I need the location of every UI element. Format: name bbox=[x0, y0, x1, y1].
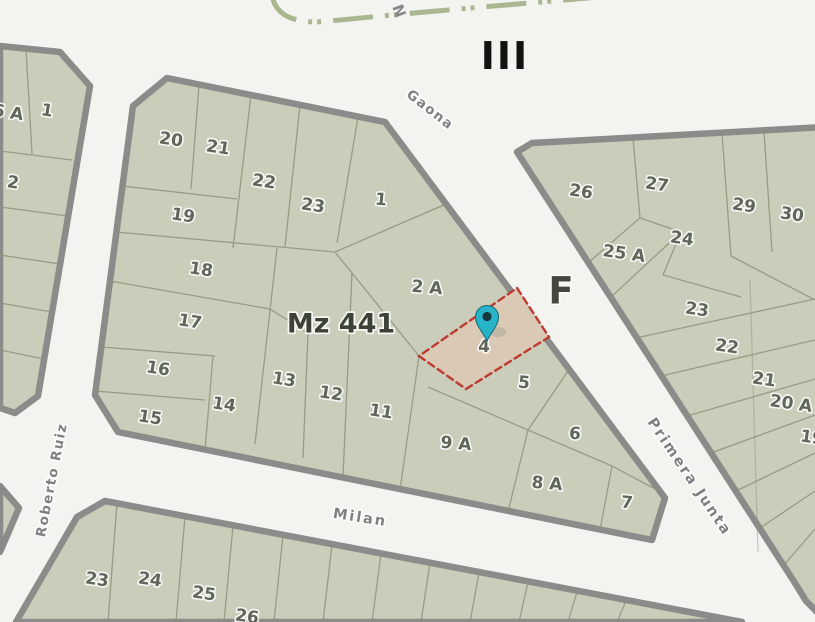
map-canvas[interactable]: 6 A 1 2 20 21 22 23 1 19 18 2 A 17 16 15… bbox=[0, 0, 815, 622]
parcel-label-29: 29 bbox=[731, 194, 757, 217]
parcel-label-5: 5 bbox=[517, 373, 531, 394]
parcel-label-14: 14 bbox=[211, 393, 238, 416]
parcel-label-18: 18 bbox=[188, 258, 215, 281]
parcel-label-8a: 8 A bbox=[531, 473, 564, 496]
parcel-label-26-right: 26 bbox=[568, 180, 594, 203]
parcel-label-2a: 2 A bbox=[411, 277, 444, 300]
parcel-label-16: 16 bbox=[145, 357, 172, 380]
selected-parcel-label: 4 bbox=[478, 337, 490, 357]
pin-hole bbox=[482, 312, 491, 321]
parcel-label-21-right: 21 bbox=[751, 368, 777, 391]
parcel-label-15: 15 bbox=[137, 406, 164, 429]
parcel-label-19: 19 bbox=[170, 204, 197, 227]
parcel-label-25-bottom: 25 bbox=[191, 582, 217, 605]
parcel-label-24-right: 24 bbox=[669, 227, 695, 250]
parcel-label-26-bottom: 26 bbox=[234, 605, 260, 622]
parcel-label-30: 30 bbox=[779, 203, 805, 226]
zone-label: III bbox=[481, 34, 529, 78]
parcel-label-23-bottom: 23 bbox=[84, 568, 110, 591]
parcel-label-24-bottom: 24 bbox=[137, 568, 163, 591]
parcel-label-17: 17 bbox=[177, 310, 204, 333]
parcel-label-22: 22 bbox=[251, 170, 278, 193]
parcel-label-20: 20 bbox=[158, 128, 185, 151]
parcel-label-21: 21 bbox=[205, 136, 232, 159]
block-title-mz441: Mz 441 bbox=[287, 309, 395, 340]
parcel-label-11: 11 bbox=[368, 400, 395, 423]
parcel-label-7: 7 bbox=[620, 493, 634, 514]
parcel-label-6a: 6 A bbox=[0, 101, 26, 126]
parcel-label-23: 23 bbox=[300, 194, 327, 217]
map-viewer[interactable]: 6 A 1 2 20 21 22 23 1 19 18 2 A 17 16 15… bbox=[0, 0, 815, 622]
parcel-label-19-right: 19 bbox=[799, 426, 815, 449]
parcel-label-13: 13 bbox=[271, 368, 298, 391]
parcel-label-22-right: 22 bbox=[714, 335, 740, 358]
section-label: F bbox=[548, 270, 573, 313]
parcel-label-9a: 9 A bbox=[440, 433, 473, 456]
parcel-label-6: 6 bbox=[568, 424, 582, 445]
parcel-label-12: 12 bbox=[318, 382, 345, 405]
parcel-label-23-right: 23 bbox=[684, 298, 710, 321]
parcel-label-27: 27 bbox=[644, 173, 670, 196]
parcel-label-1: 1 bbox=[374, 190, 388, 211]
